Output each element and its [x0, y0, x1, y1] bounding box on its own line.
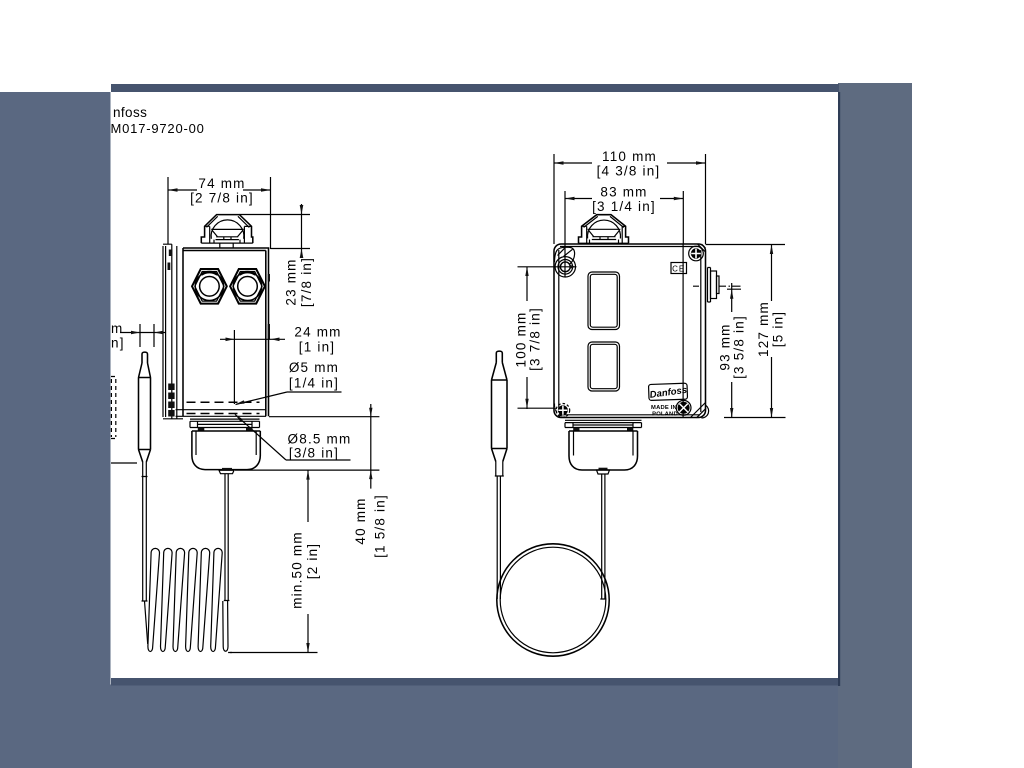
- svg-text:nfoss: nfoss: [113, 105, 147, 120]
- svg-text:[5 in]: [5 in]: [771, 311, 786, 347]
- svg-text:[7/8 in]: [7/8 in]: [299, 257, 314, 307]
- svg-text:[4 3/8 in]: [4 3/8 in]: [597, 164, 661, 179]
- svg-text:[2 in]: [2 in]: [305, 543, 320, 579]
- svg-text:[1 in]: [1 in]: [299, 340, 335, 355]
- svg-text:n]: n]: [111, 336, 125, 351]
- svg-text:127 mm: 127 mm: [756, 301, 771, 357]
- svg-text:24 mm: 24 mm: [294, 325, 341, 340]
- svg-text:[3 7/8 in]: [3 7/8 in]: [528, 307, 543, 371]
- svg-text:[2 7/8 in]: [2 7/8 in]: [190, 191, 254, 206]
- svg-text:[1/4 in]: [1/4 in]: [289, 376, 339, 391]
- svg-text:40 mm: 40 mm: [353, 497, 368, 544]
- svg-text:[3 5/8 in]: [3 5/8 in]: [732, 315, 747, 379]
- svg-text:[3/8 in]: [3/8 in]: [289, 446, 339, 461]
- svg-text:[3 1/4 in]: [3 1/4 in]: [592, 199, 656, 214]
- svg-text:m: m: [111, 321, 123, 336]
- svg-text:MADE IN: MADE IN: [651, 405, 677, 411]
- svg-text:POLAND: POLAND: [652, 412, 678, 418]
- svg-text:93 mm: 93 mm: [718, 323, 733, 370]
- svg-text:23 mm: 23 mm: [284, 258, 299, 305]
- svg-text:74 mm: 74 mm: [198, 176, 245, 191]
- svg-text:Ø5 mm: Ø5 mm: [289, 360, 339, 375]
- svg-text:CE: CE: [672, 264, 685, 273]
- svg-text:Ø8.5 mm: Ø8.5 mm: [288, 432, 352, 447]
- svg-text:110 mm: 110 mm: [602, 149, 657, 164]
- svg-text:83 mm: 83 mm: [600, 185, 647, 200]
- svg-text:M017-9720-00: M017-9720-00: [111, 121, 205, 136]
- svg-text:[1 5/8 in]: [1 5/8 in]: [373, 494, 388, 558]
- svg-text:min.50 mm: min.50 mm: [290, 531, 305, 609]
- svg-text:100 mm: 100 mm: [514, 312, 529, 368]
